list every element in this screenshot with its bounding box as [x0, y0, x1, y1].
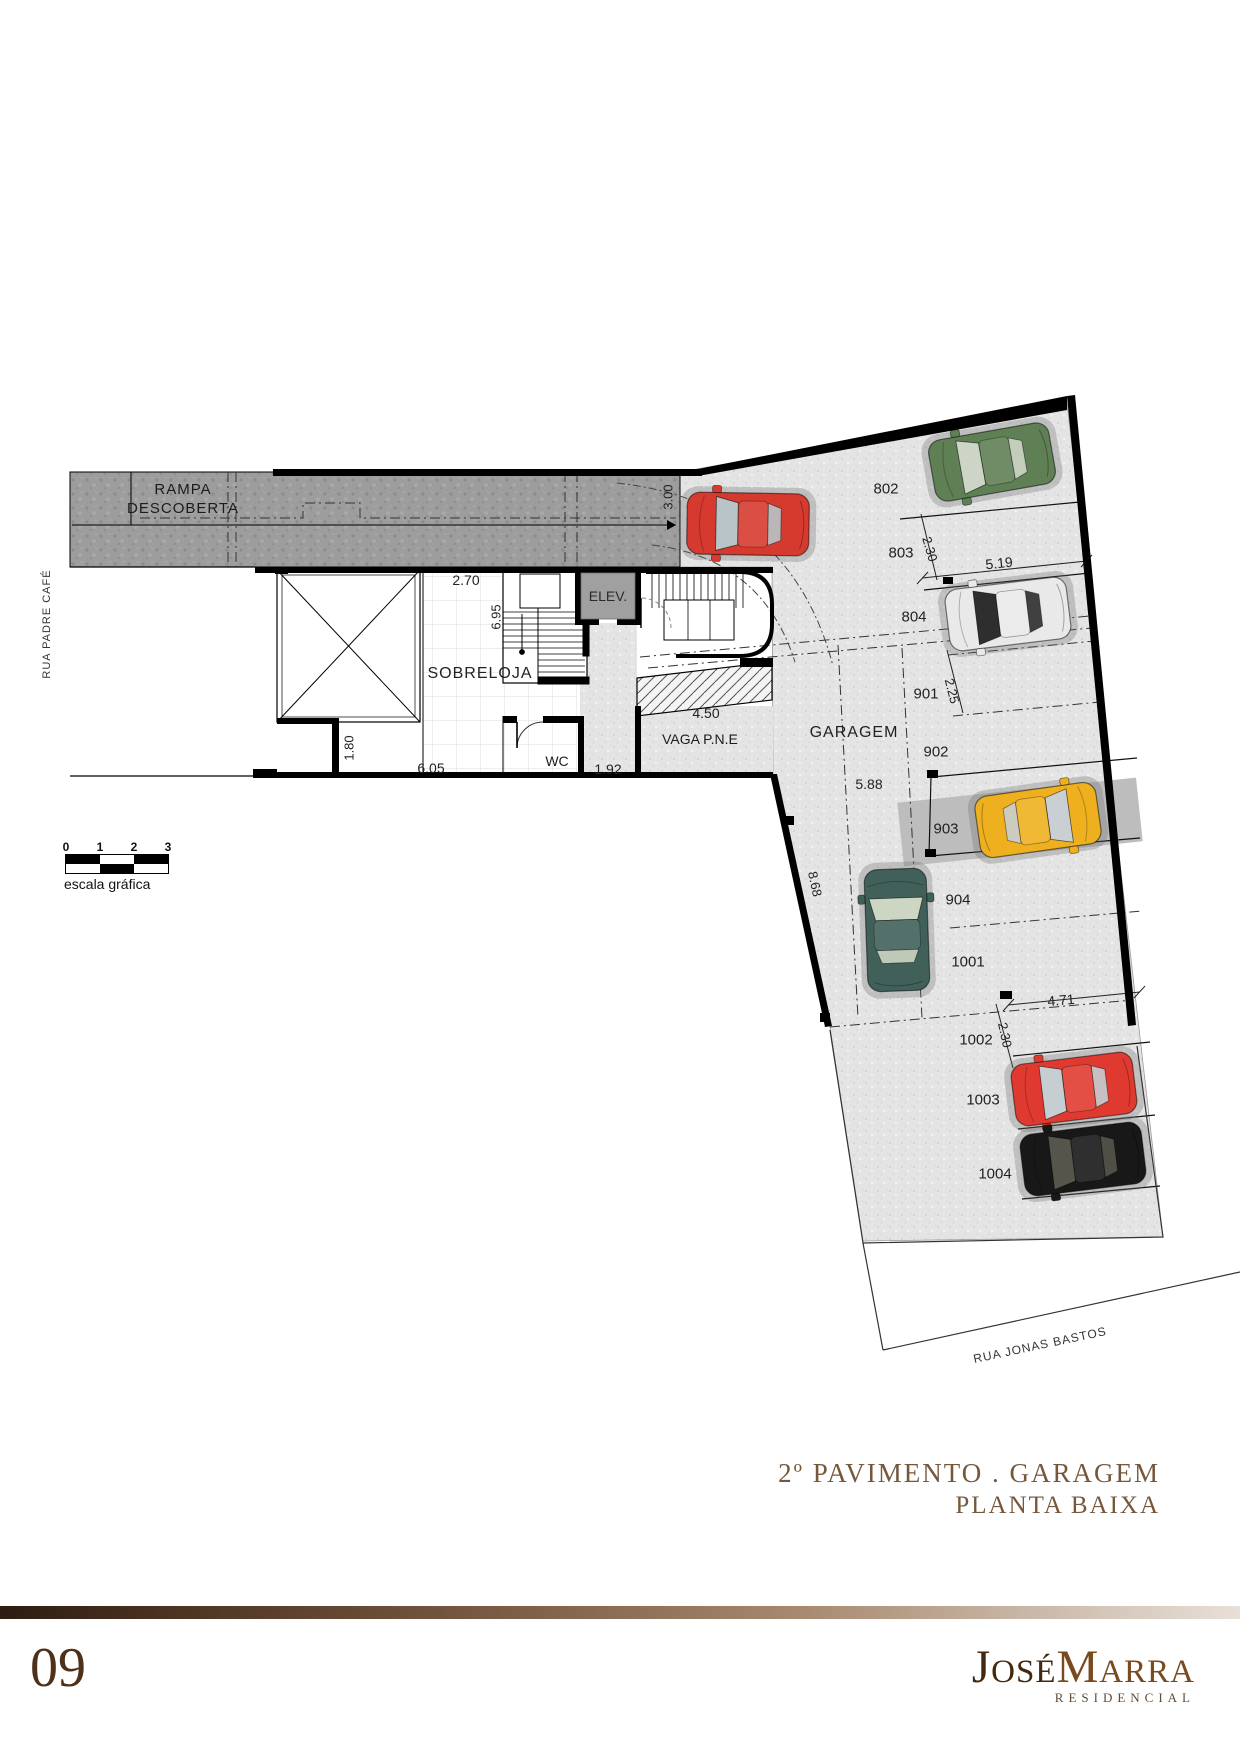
spot-1001: 1001: [951, 954, 984, 971]
dim-void-gap: 1.80: [342, 735, 357, 760]
scale-tick-3: 3: [165, 840, 172, 854]
spot-1003: 1003: [966, 1092, 999, 1109]
title-block: 2º PAVIMENTO . GARAGEM PLANTA BAIXA: [778, 1458, 1160, 1520]
dim-ramp-width: 3.00: [661, 484, 676, 509]
dim-mezz-depth: 6.95: [489, 604, 504, 629]
spot-901: 901: [913, 686, 938, 703]
scale-tick-1: 1: [97, 840, 104, 854]
dim-mezz-width: 2.70: [452, 572, 479, 588]
dim-mezz-len: 6.05: [417, 760, 444, 776]
brand-name: JoséMarra: [972, 1642, 1195, 1692]
spot-902: 902: [923, 744, 948, 761]
graphic-scale: 0 1 2 3 escala gráfica: [64, 840, 174, 892]
car-lane: [857, 861, 938, 1000]
garage-label: GARAGEM: [810, 724, 899, 742]
car-ramp-turn: [679, 485, 816, 563]
spot-802: 802: [873, 481, 898, 498]
spot-804: 804: [901, 609, 926, 626]
spot-803: 803: [888, 545, 913, 562]
dim-corridor: 1.92: [594, 761, 621, 777]
scale-tick-0: 0: [63, 840, 70, 854]
wc-label: WC: [545, 753, 568, 769]
dim-vaga-len: 4.50: [692, 705, 719, 721]
spot-1002: 1002: [959, 1032, 992, 1049]
ramp-label: RAMPA DESCOBERTA: [127, 480, 239, 518]
accessible-spot-label: VAGA P.N.E: [662, 731, 738, 747]
brand-first: José: [972, 1641, 1057, 1693]
plan-sheet: RUA PADRE CAFÉ RAMPA DESCOBERTA 2.70 6.9…: [0, 0, 1240, 1754]
street-label-rua-padre-cafe: RUA PADRE CAFÉ: [41, 569, 53, 678]
ramp-label-line1: RAMPA: [127, 480, 239, 499]
dim-lane-w: 5.88: [855, 776, 882, 792]
spot-904: 904: [945, 892, 970, 909]
scale-ticks: 0 1 2 3: [64, 840, 174, 854]
brand-last: Marra: [1057, 1641, 1195, 1693]
mezzanine-label: SOBRELOJA: [427, 665, 532, 683]
ramp-label-line2: DESCOBERTA: [127, 499, 239, 518]
footer-gradient-bar: [0, 1606, 1240, 1619]
elevator-label: ELEV.: [589, 588, 627, 604]
plan-subtitle: PLANTA BAIXA: [778, 1492, 1160, 1520]
plan-title: 2º PAVIMENTO . GARAGEM: [778, 1458, 1160, 1489]
dim-spot-len-top: 5.19: [985, 554, 1014, 573]
dim-spot-len-1001: 4.71: [1047, 991, 1076, 1009]
scale-tick-2: 2: [131, 840, 138, 854]
scale-bar-blocks: [65, 854, 169, 874]
spot-903: 903: [933, 821, 958, 838]
scale-caption: escala gráfica: [64, 876, 174, 892]
brand-logo: JoséMarra RESIDENCIAL: [972, 1642, 1195, 1706]
spot-1004: 1004: [978, 1166, 1011, 1183]
garage-stairs: [641, 572, 772, 656]
page-number: 09: [30, 1636, 86, 1700]
